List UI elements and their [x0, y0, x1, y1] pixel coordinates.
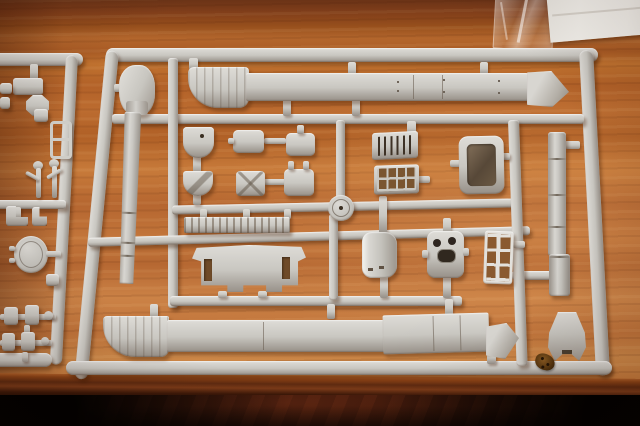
sprue-connector	[565, 141, 580, 149]
part-skirt-curved-end	[103, 316, 169, 357]
photo-scene	[0, 0, 640, 426]
box-tab	[303, 161, 309, 170]
plate-round-hole	[448, 237, 456, 245]
debris-speckle	[541, 357, 545, 361]
part-half-round-cover	[183, 127, 214, 158]
mesh-cells	[377, 167, 416, 191]
barrel-ring	[548, 226, 566, 228]
sprue-connector	[379, 196, 387, 234]
box-tab	[288, 161, 294, 170]
grille-slats	[378, 135, 412, 156]
barrel-ring	[119, 242, 137, 245]
part-stowage-box	[233, 130, 264, 153]
panel-seam	[460, 315, 462, 350]
sprue-connector	[352, 99, 360, 116]
wheel-hub	[339, 206, 343, 210]
part-skirt-panel-section	[383, 313, 490, 355]
panel-seam	[413, 75, 414, 99]
part-strip-angled-end	[527, 71, 569, 107]
lattice-cells	[486, 234, 511, 282]
part-half-round-cover	[183, 171, 213, 196]
sprue-frame-bottom-rail	[66, 361, 612, 375]
barrel-ring	[118, 255, 136, 258]
rivet-dots	[443, 79, 445, 81]
sprue-runner-vertical	[168, 58, 178, 308]
sprue-connector	[264, 179, 286, 185]
sprue-connector	[218, 291, 227, 298]
shell-notch	[368, 268, 373, 271]
part-stowage-box	[284, 169, 314, 196]
part-curved-hatch-shell	[362, 232, 397, 278]
sprue-frame-top-rail	[106, 48, 598, 62]
sprue-connector	[513, 241, 525, 248]
sprue-connector	[264, 138, 286, 144]
part-hull-side-strip-top	[246, 73, 528, 101]
plate-tab	[422, 250, 428, 258]
plate-oval-opening	[437, 249, 456, 263]
barrel-ring	[548, 158, 566, 160]
part-track-strip	[184, 217, 290, 233]
hatch-frame-opening	[467, 144, 497, 186]
part-stowage-box	[236, 171, 265, 196]
sprue-frame-right-rail	[579, 50, 610, 376]
box-tab	[228, 138, 234, 144]
sprue-connector	[258, 291, 267, 298]
part-muzzle-brake	[548, 312, 586, 361]
part-fender-curved-end	[188, 67, 249, 108]
sprue-runner-vertical	[336, 120, 345, 200]
part-hull-side-strip-bottom	[167, 320, 385, 352]
plate-slot	[282, 257, 290, 279]
part-rear-hull-plate	[192, 245, 306, 293]
sprue-connector	[327, 304, 335, 319]
part-ladder-lattice	[483, 231, 514, 285]
part-louvered-grille	[372, 131, 418, 160]
part-hatch-frame	[458, 136, 504, 195]
part-wheel-cap	[328, 195, 354, 221]
panel-seam	[263, 322, 264, 350]
part-barrel-sleeve	[549, 254, 570, 296]
muzzle-notch	[562, 350, 572, 357]
barrel-ring	[549, 256, 570, 258]
sprue-connector	[380, 276, 388, 298]
plate-slot	[204, 259, 212, 281]
part-gun-mantlet	[119, 65, 155, 115]
box-tab	[297, 125, 304, 134]
sprue-connector	[283, 99, 291, 116]
barrel-ring	[120, 212, 138, 215]
cover-hole	[200, 134, 204, 138]
sprue-connector	[418, 176, 430, 183]
part-gun-barrel-left	[117, 112, 142, 285]
part-stowage-box	[286, 133, 315, 156]
sprue-runner-horizontal	[170, 296, 462, 306]
sprue-runner-vertical	[329, 214, 338, 300]
part-skirt-angled-tip	[486, 323, 519, 359]
sprue-connector	[443, 276, 451, 298]
panel-seam	[433, 316, 435, 351]
shell-notch	[379, 266, 384, 269]
part-mesh-grille	[374, 164, 419, 195]
barrel-ring	[548, 194, 566, 196]
part-back-plate-with-openings	[427, 231, 464, 278]
plate-round-hole	[433, 239, 441, 247]
part-gun-barrel-right	[548, 132, 566, 256]
plate-tab	[463, 248, 469, 256]
